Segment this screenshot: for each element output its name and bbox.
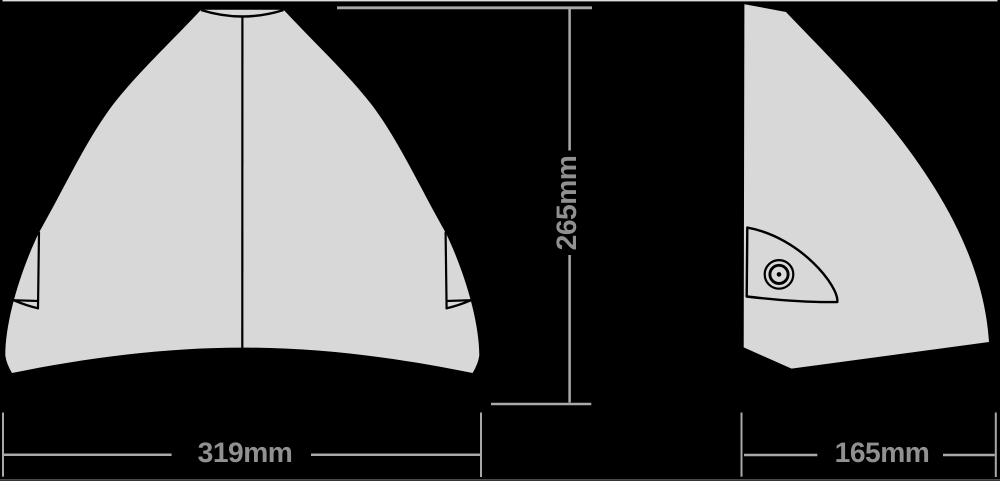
svg-text:319mm: 319mm [198,436,293,468]
svg-text:265mm: 265mm [550,156,582,251]
svg-text:165mm: 165mm [835,436,930,468]
